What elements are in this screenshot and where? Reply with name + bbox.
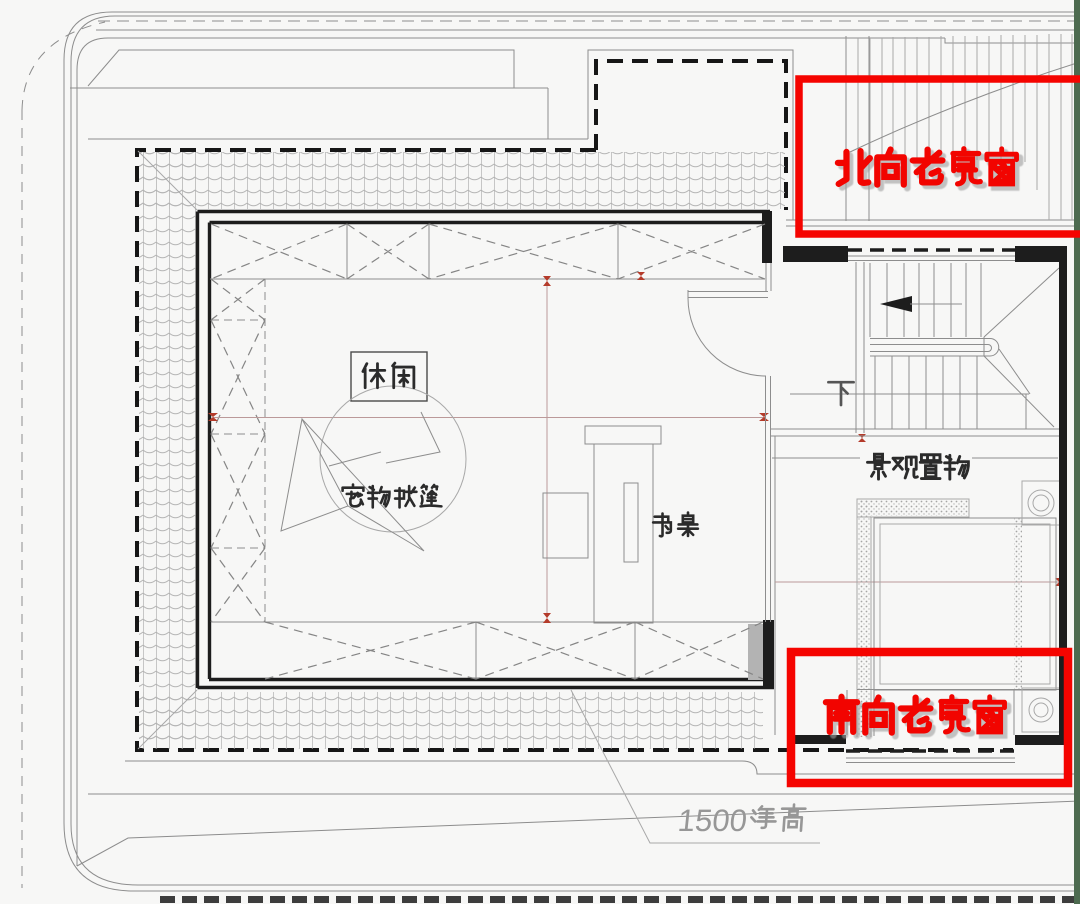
svg-text:1500: 1500 [676, 803, 749, 838]
